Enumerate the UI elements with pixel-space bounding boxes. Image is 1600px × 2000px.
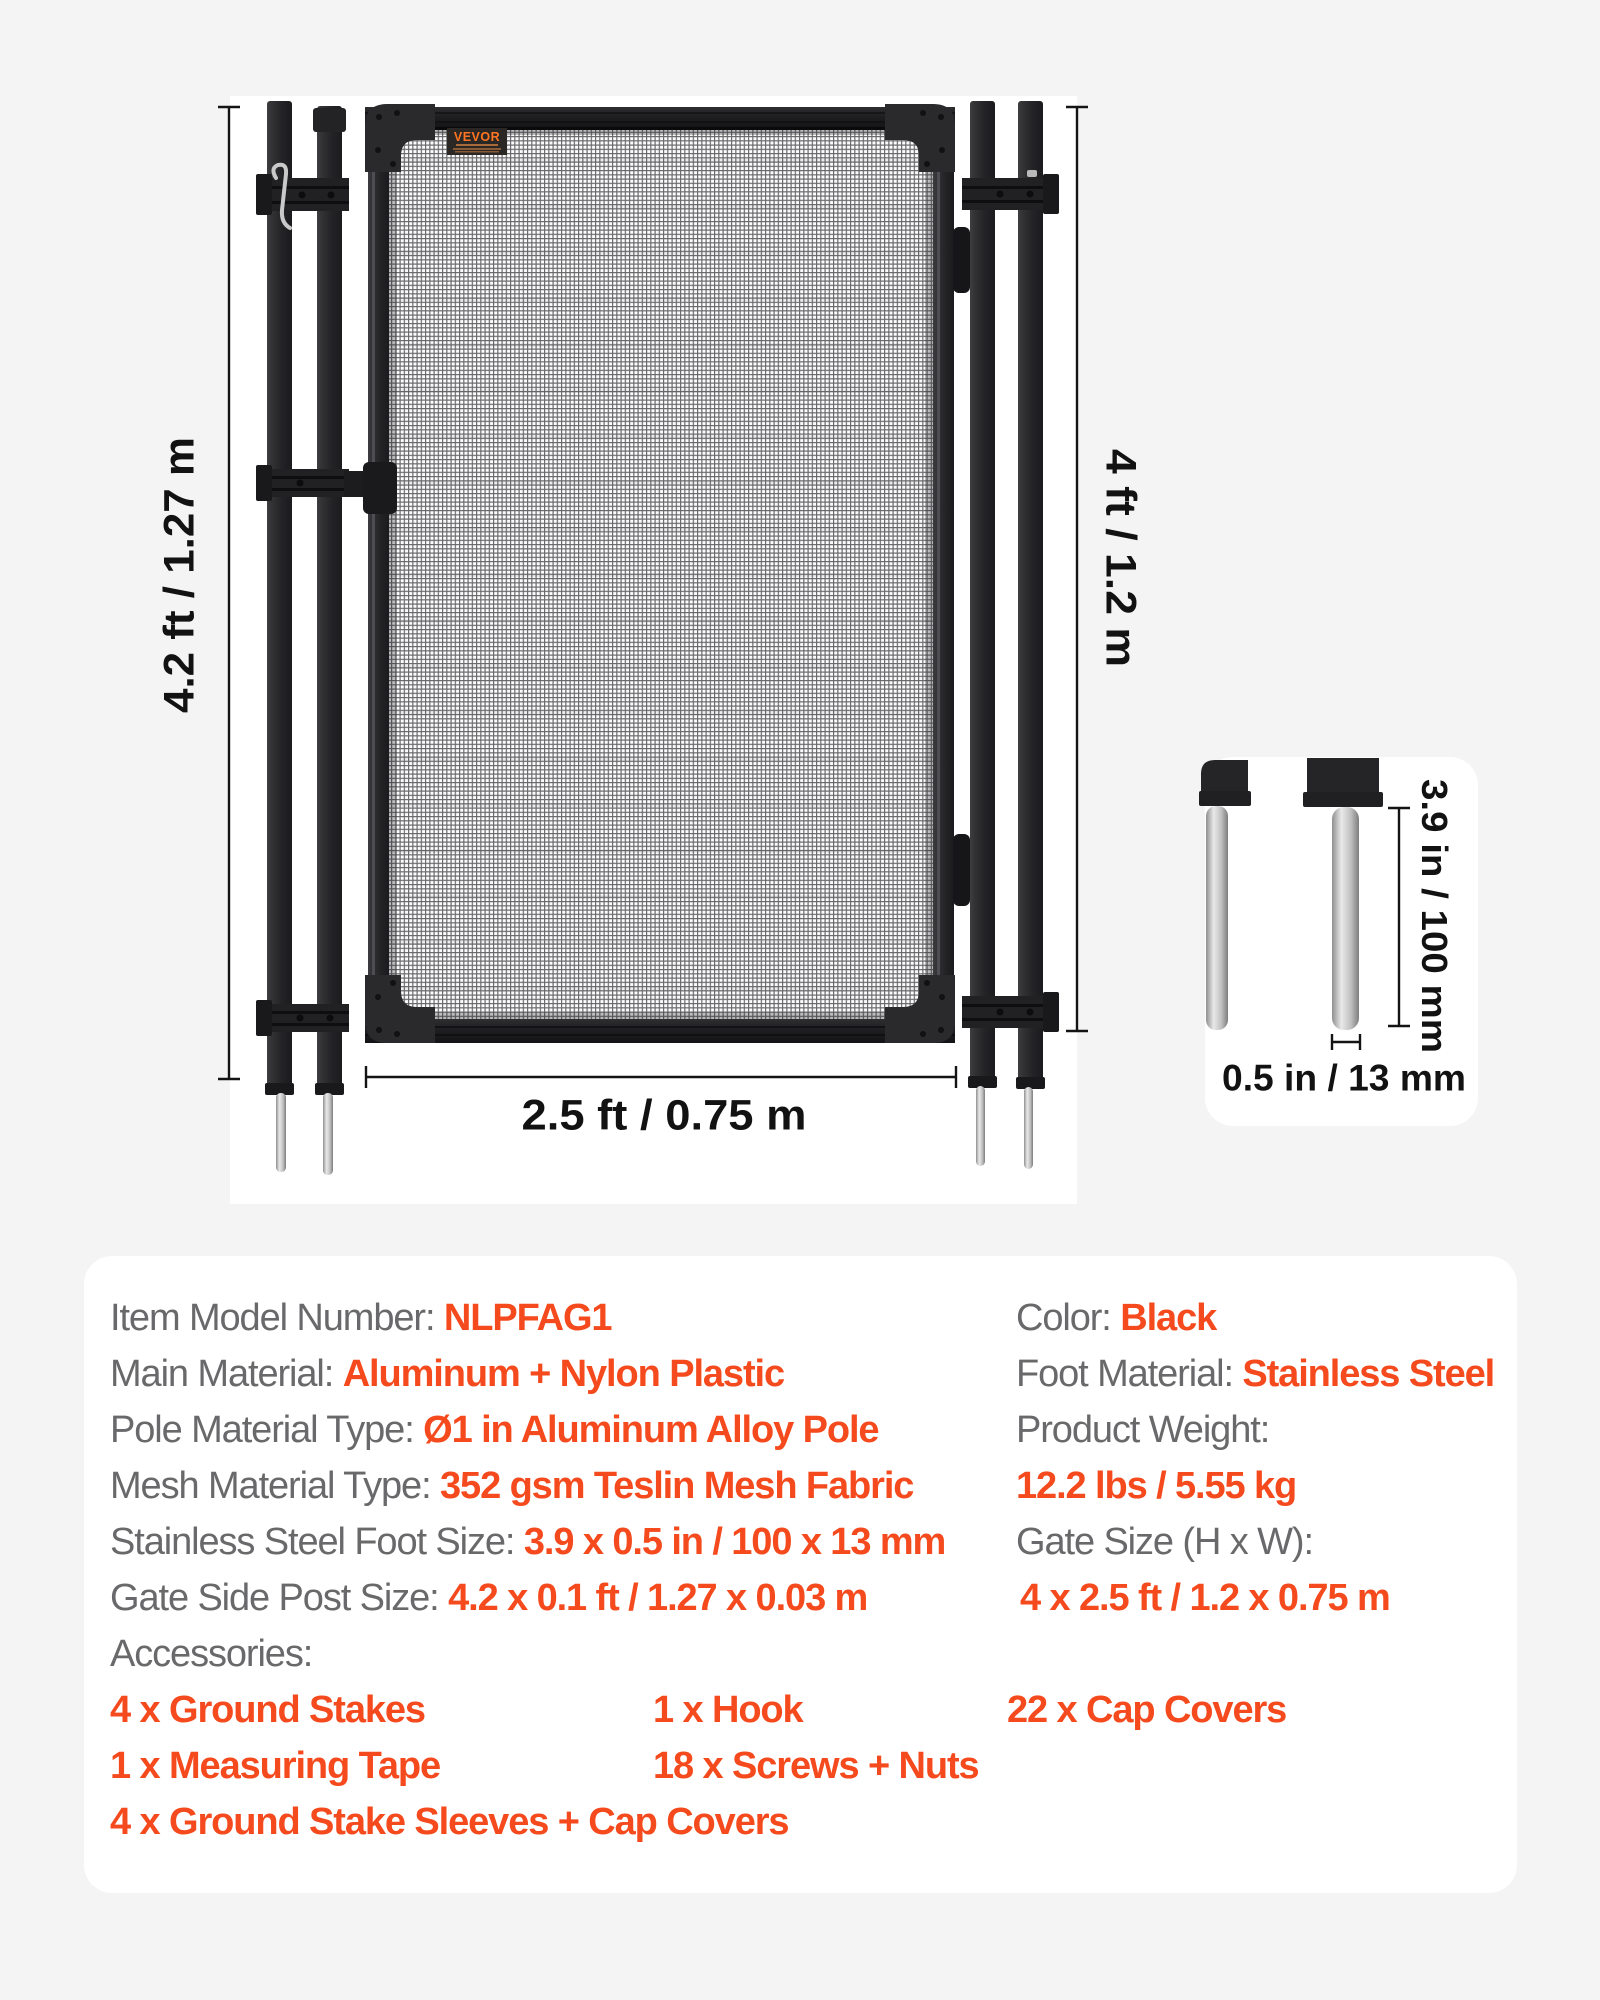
svg-text:4.2 ft / 1.27 m: 4.2 ft / 1.27 m: [156, 437, 204, 713]
svg-text:2.5 ft / 0.75 m: 2.5 ft / 0.75 m: [522, 1092, 807, 1140]
svg-text:0.5 in / 13 mm: 0.5 in / 13 mm: [1222, 1057, 1466, 1099]
svg-text:VEVOR: VEVOR: [454, 130, 500, 144]
svg-text:3.9 in / 100 mm: 3.9 in / 100 mm: [1414, 779, 1455, 1053]
svg-text:4 ft / 1.2 m: 4 ft / 1.2 m: [1096, 449, 1144, 667]
